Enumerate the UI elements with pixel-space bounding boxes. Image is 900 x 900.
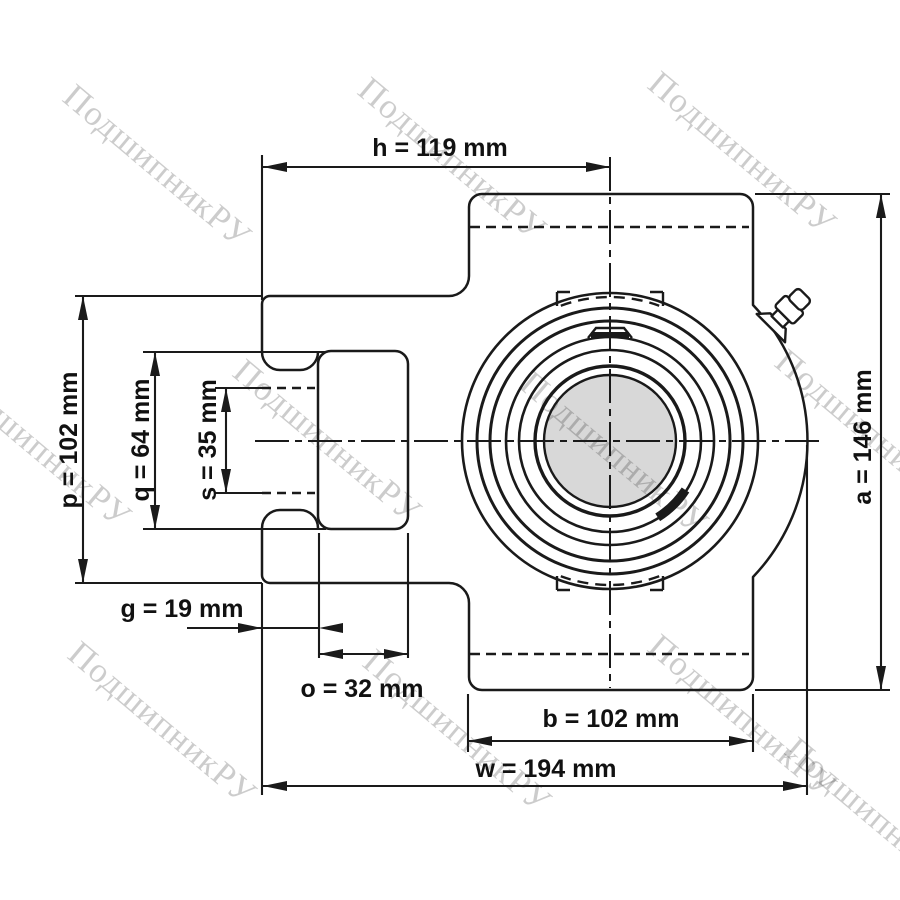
dimension-label-b: b = 102 mm <box>543 705 680 733</box>
arrowhead <box>876 194 886 218</box>
dimension-b <box>468 736 753 746</box>
arrowhead <box>221 469 231 493</box>
dimension-label-a: a = 146 mm <box>849 369 877 505</box>
arrowhead <box>263 781 287 791</box>
dimension-s <box>221 388 231 493</box>
arrowhead <box>263 162 287 172</box>
arrowhead <box>319 623 343 633</box>
arrowhead <box>150 352 160 376</box>
dimension-label-o: o = 32 mm <box>301 675 424 703</box>
watermark-text: ПодшипникРУ <box>778 729 900 900</box>
arrowhead <box>78 296 88 320</box>
arrowhead <box>221 388 231 412</box>
dimension-label-h: h = 119 mm <box>372 134 508 162</box>
watermark-text: ПодшипникРУ <box>356 641 559 821</box>
arrowhead <box>586 162 610 172</box>
dimension-label-p: p = 102 mm <box>55 372 83 509</box>
arrowhead <box>238 623 262 633</box>
arrowhead <box>78 559 88 583</box>
technical-drawing-page: ПодшипникРУ ПодшипникРУ ПодшипникРУ Подш… <box>0 0 900 900</box>
watermark-text: ПодшипникРУ <box>641 63 844 243</box>
bearing-drawing: ПодшипникРУ ПодшипникРУ ПодшипникРУ Подш… <box>0 0 900 900</box>
dimension-label-s: s = 35 mm <box>194 379 222 501</box>
arrowhead <box>319 649 343 659</box>
dimension-label-w: w = 194 mm <box>474 755 616 783</box>
grease-fitting <box>757 280 819 342</box>
arrowhead <box>876 666 886 690</box>
dimension-label-g: g = 19 mm <box>121 595 244 623</box>
arrowhead <box>150 505 160 529</box>
watermark-text: ПодшипникРУ <box>56 76 259 256</box>
dimension-label-q: q = 64 mm <box>127 379 155 502</box>
watermark-text: ПодшипникРУ <box>61 633 264 813</box>
